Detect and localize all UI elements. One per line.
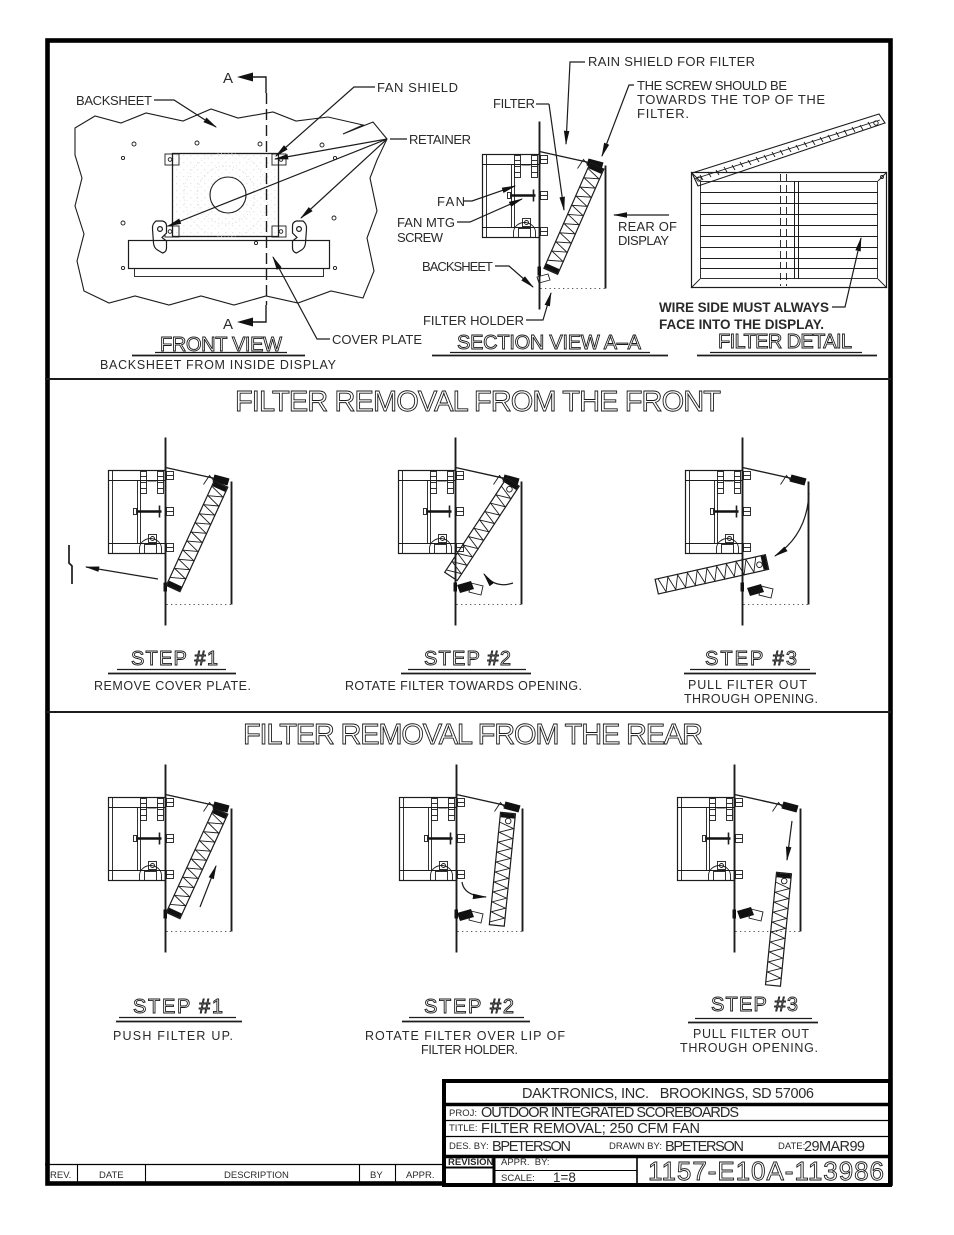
svg-text:DES. BY:: DES. BY: <box>449 1141 489 1152</box>
svg-text:FAN: FAN <box>437 194 465 209</box>
svg-text:BACKSHEET: BACKSHEET <box>422 259 493 274</box>
svg-text:STEP #3: STEP #3 <box>711 994 799 1016</box>
svg-text:BPETERSON: BPETERSON <box>492 1139 571 1155</box>
svg-text:SCALE:: SCALE: <box>501 1173 535 1184</box>
svg-text:COVER PLATE: COVER PLATE <box>332 332 422 347</box>
svg-text:PULL FILTER OUT: PULL FILTER OUT <box>693 1027 809 1041</box>
svg-text:FAN SHIELD: FAN SHIELD <box>377 80 458 95</box>
svg-text:FILTER: FILTER <box>493 96 535 111</box>
svg-text:APPR.: APPR. <box>406 1170 435 1181</box>
svg-text:REV.: REV. <box>50 1170 71 1181</box>
svg-text:DESCRIPTION: DESCRIPTION <box>224 1170 289 1181</box>
svg-text:STEP #2: STEP #2 <box>424 996 515 1018</box>
svg-text:STEP #1: STEP #1 <box>131 648 219 670</box>
svg-text:BY: BY <box>370 1170 383 1181</box>
svg-text:ROTATE FILTER OVER LIP OF: ROTATE FILTER OVER LIP OF <box>365 1029 565 1043</box>
svg-text:FAN MTG: FAN MTG <box>397 215 455 230</box>
svg-text:29MAR99: 29MAR99 <box>804 1139 865 1155</box>
svg-text:PROJ:: PROJ: <box>449 1108 477 1119</box>
svg-text:STEP #1: STEP #1 <box>133 996 224 1018</box>
svg-text:BACKSHEET FROM INSIDE DISPLAY: BACKSHEET FROM INSIDE DISPLAY <box>100 358 337 372</box>
svg-text:PUSH FILTER UP.: PUSH FILTER UP. <box>113 1029 233 1043</box>
svg-text:RAIN SHIELD FOR FILTER: RAIN SHIELD FOR FILTER <box>588 54 755 69</box>
svg-text:BACKSHEET: BACKSHEET <box>76 93 152 108</box>
svg-text:FILTER HOLDER.: FILTER HOLDER. <box>421 1043 518 1057</box>
svg-text:FILTER REMOVAL; 250 CFM FAN: FILTER REMOVAL; 250 CFM FAN <box>481 1121 700 1137</box>
svg-text:STEP #2: STEP #2 <box>424 648 512 670</box>
svg-text:FILTER HOLDER: FILTER HOLDER <box>423 313 524 328</box>
svg-text:SCREW: SCREW <box>397 230 444 245</box>
svg-text:APPR. BY:: APPR. BY: <box>501 1157 550 1168</box>
svg-text:FACE INTO THE DISPLAY.: FACE INTO THE DISPLAY. <box>659 317 824 332</box>
svg-text:WIRE SIDE MUST ALWAYS: WIRE SIDE MUST ALWAYS <box>659 300 829 315</box>
svg-text:REMOVE COVER PLATE.: REMOVE COVER PLATE. <box>94 679 251 693</box>
svg-text:DATE:: DATE: <box>778 1141 805 1152</box>
svg-text:A: A <box>223 316 233 333</box>
svg-text:FILTER DETAIL: FILTER DETAIL <box>718 331 854 353</box>
svg-text:FILTER REMOVAL FROM THE REAR: FILTER REMOVAL FROM THE REAR <box>243 719 705 751</box>
svg-text:FILTER.: FILTER. <box>637 106 689 121</box>
svg-text:TOWARDS THE TOP OF THE: TOWARDS THE TOP OF THE <box>637 92 825 107</box>
svg-text:RETAINER: RETAINER <box>409 132 471 147</box>
svg-text:DRAWN BY:: DRAWN BY: <box>609 1141 662 1152</box>
svg-text:TITLE:: TITLE: <box>449 1123 478 1134</box>
svg-text:THROUGH OPENING.: THROUGH OPENING. <box>684 692 818 706</box>
svg-text:OUTDOOR INTEGRATED SCOREBOARDS: OUTDOOR INTEGRATED SCOREBOARDS <box>481 1105 739 1121</box>
svg-text:ROTATE FILTER TOWARDS OPENING.: ROTATE FILTER TOWARDS OPENING. <box>345 679 582 693</box>
svg-text:THE SCREW SHOULD BE: THE SCREW SHOULD BE <box>637 78 787 93</box>
svg-text:DISPLAY: DISPLAY <box>618 233 669 248</box>
svg-text:1=8: 1=8 <box>553 1170 576 1185</box>
svg-text:REVISION: REVISION <box>448 1157 494 1168</box>
svg-text:1157-E10A-113986: 1157-E10A-113986 <box>648 1156 886 1186</box>
svg-text:REAR OF: REAR OF <box>618 219 677 234</box>
svg-text:SECTION VIEW A–A: SECTION VIEW A–A <box>457 332 643 354</box>
svg-text:BPETERSON: BPETERSON <box>665 1139 744 1155</box>
svg-text:FILTER REMOVAL FROM THE FRONT: FILTER REMOVAL FROM THE FRONT <box>235 386 723 418</box>
svg-text:THROUGH OPENING.: THROUGH OPENING. <box>680 1041 818 1055</box>
svg-text:PULL FILTER OUT: PULL FILTER OUT <box>688 678 807 692</box>
svg-text:DATE: DATE <box>99 1170 124 1181</box>
svg-text:STEP #3: STEP #3 <box>705 648 798 670</box>
svg-text:A: A <box>223 70 233 87</box>
svg-text:DAKTRONICS, INC. BROOKINGS,: DAKTRONICS, INC. BROOKINGS, SD 57006 <box>522 1086 814 1102</box>
